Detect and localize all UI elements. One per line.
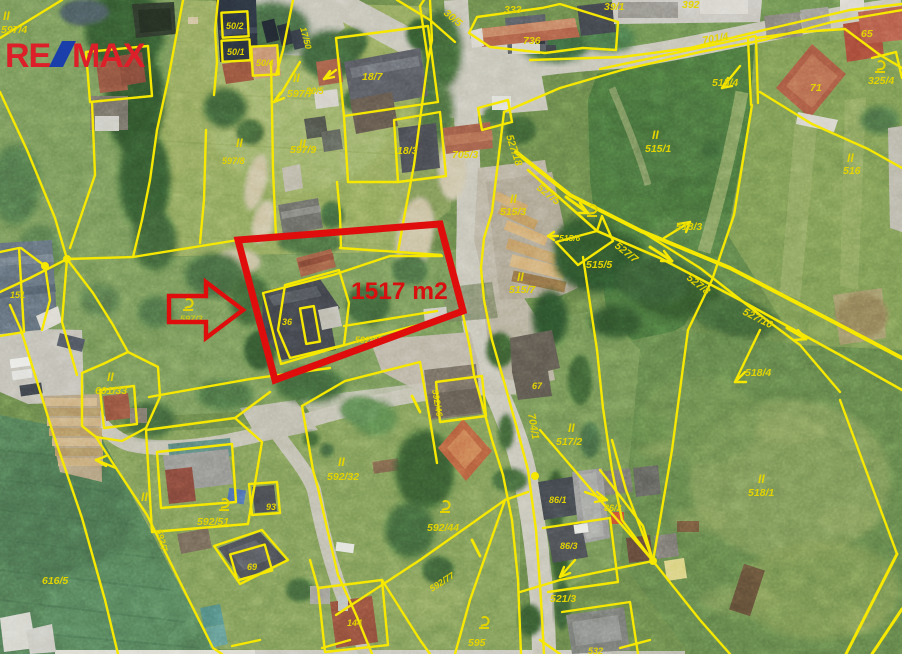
svg-text:736: 736 xyxy=(523,35,541,47)
svg-text:65: 65 xyxy=(861,28,873,40)
svg-text:II: II xyxy=(847,151,854,165)
svg-text:II: II xyxy=(510,192,517,206)
svg-text:515/5: 515/5 xyxy=(586,259,612,271)
svg-text:86/3: 86/3 xyxy=(560,541,578,551)
svg-text:II: II xyxy=(652,128,659,142)
svg-text:333: 333 xyxy=(504,4,522,16)
svg-text:36: 36 xyxy=(282,317,293,327)
svg-text:597/8: 597/8 xyxy=(222,156,245,166)
svg-text:86/1: 86/1 xyxy=(549,495,567,505)
svg-text:II: II xyxy=(3,9,10,23)
svg-text:597/4: 597/4 xyxy=(1,24,27,36)
svg-text:601/33: 601/33 xyxy=(95,385,127,397)
svg-text:532: 532 xyxy=(588,646,603,654)
svg-text:II: II xyxy=(517,270,524,284)
svg-text:II: II xyxy=(568,421,575,435)
svg-text:518/4: 518/4 xyxy=(745,367,771,379)
svg-text:521/3: 521/3 xyxy=(550,593,576,605)
svg-text:39/1: 39/1 xyxy=(604,1,625,13)
svg-text:518/1: 518/1 xyxy=(748,487,774,499)
svg-text:69: 69 xyxy=(247,562,257,572)
svg-text:50/4: 50/4 xyxy=(256,58,274,68)
svg-text:II: II xyxy=(758,472,765,486)
svg-text:II: II xyxy=(338,455,345,469)
svg-text:67: 67 xyxy=(532,381,543,391)
svg-text:325/4: 325/4 xyxy=(868,75,894,87)
svg-text:515/3: 515/3 xyxy=(500,206,526,218)
svg-text:515/1: 515/1 xyxy=(645,143,671,155)
svg-text:30/5: 30/5 xyxy=(306,86,325,96)
svg-text:MAX: MAX xyxy=(72,37,146,75)
svg-text:515/6: 515/6 xyxy=(559,233,581,243)
svg-text:RE: RE xyxy=(5,37,51,75)
svg-text:597/9: 597/9 xyxy=(290,144,316,156)
svg-text:595: 595 xyxy=(468,637,486,649)
svg-text:86/2: 86/2 xyxy=(604,503,622,513)
svg-text:50/1: 50/1 xyxy=(227,47,245,57)
svg-text:II: II xyxy=(236,136,243,150)
svg-text:592/51: 592/51 xyxy=(197,516,229,528)
svg-text:1517 m2: 1517 m2 xyxy=(351,278,448,305)
svg-text:50/2: 50/2 xyxy=(226,21,244,31)
svg-text:93: 93 xyxy=(266,502,276,512)
svg-text:518/3: 518/3 xyxy=(676,221,702,233)
svg-text:144: 144 xyxy=(347,618,362,628)
svg-text:II: II xyxy=(293,71,300,85)
svg-text:705/3: 705/3 xyxy=(452,149,478,161)
svg-text:592/44: 592/44 xyxy=(427,522,459,534)
svg-text:71: 71 xyxy=(810,82,822,94)
svg-text:II: II xyxy=(141,490,148,504)
svg-text:392: 392 xyxy=(682,0,700,11)
svg-text:616/5: 616/5 xyxy=(42,575,68,587)
svg-text:516: 516 xyxy=(843,165,861,177)
svg-text:515/7: 515/7 xyxy=(509,284,536,296)
svg-text:18/7: 18/7 xyxy=(362,71,384,83)
svg-text:18/3: 18/3 xyxy=(397,145,418,157)
svg-text:592/32: 592/32 xyxy=(327,471,359,483)
svg-text:151: 151 xyxy=(10,290,25,300)
svg-text:517/2: 517/2 xyxy=(556,436,582,448)
svg-text:II: II xyxy=(107,370,114,384)
svg-text:515/4: 515/4 xyxy=(712,77,738,89)
